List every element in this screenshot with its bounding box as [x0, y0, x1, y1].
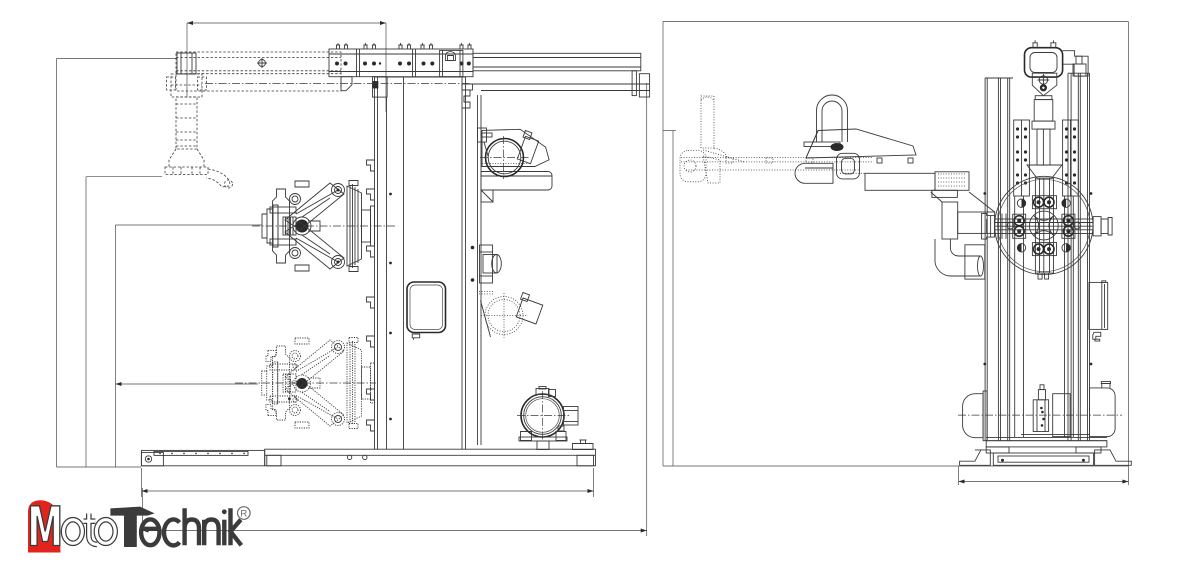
svg-text:R: R: [240, 509, 247, 520]
